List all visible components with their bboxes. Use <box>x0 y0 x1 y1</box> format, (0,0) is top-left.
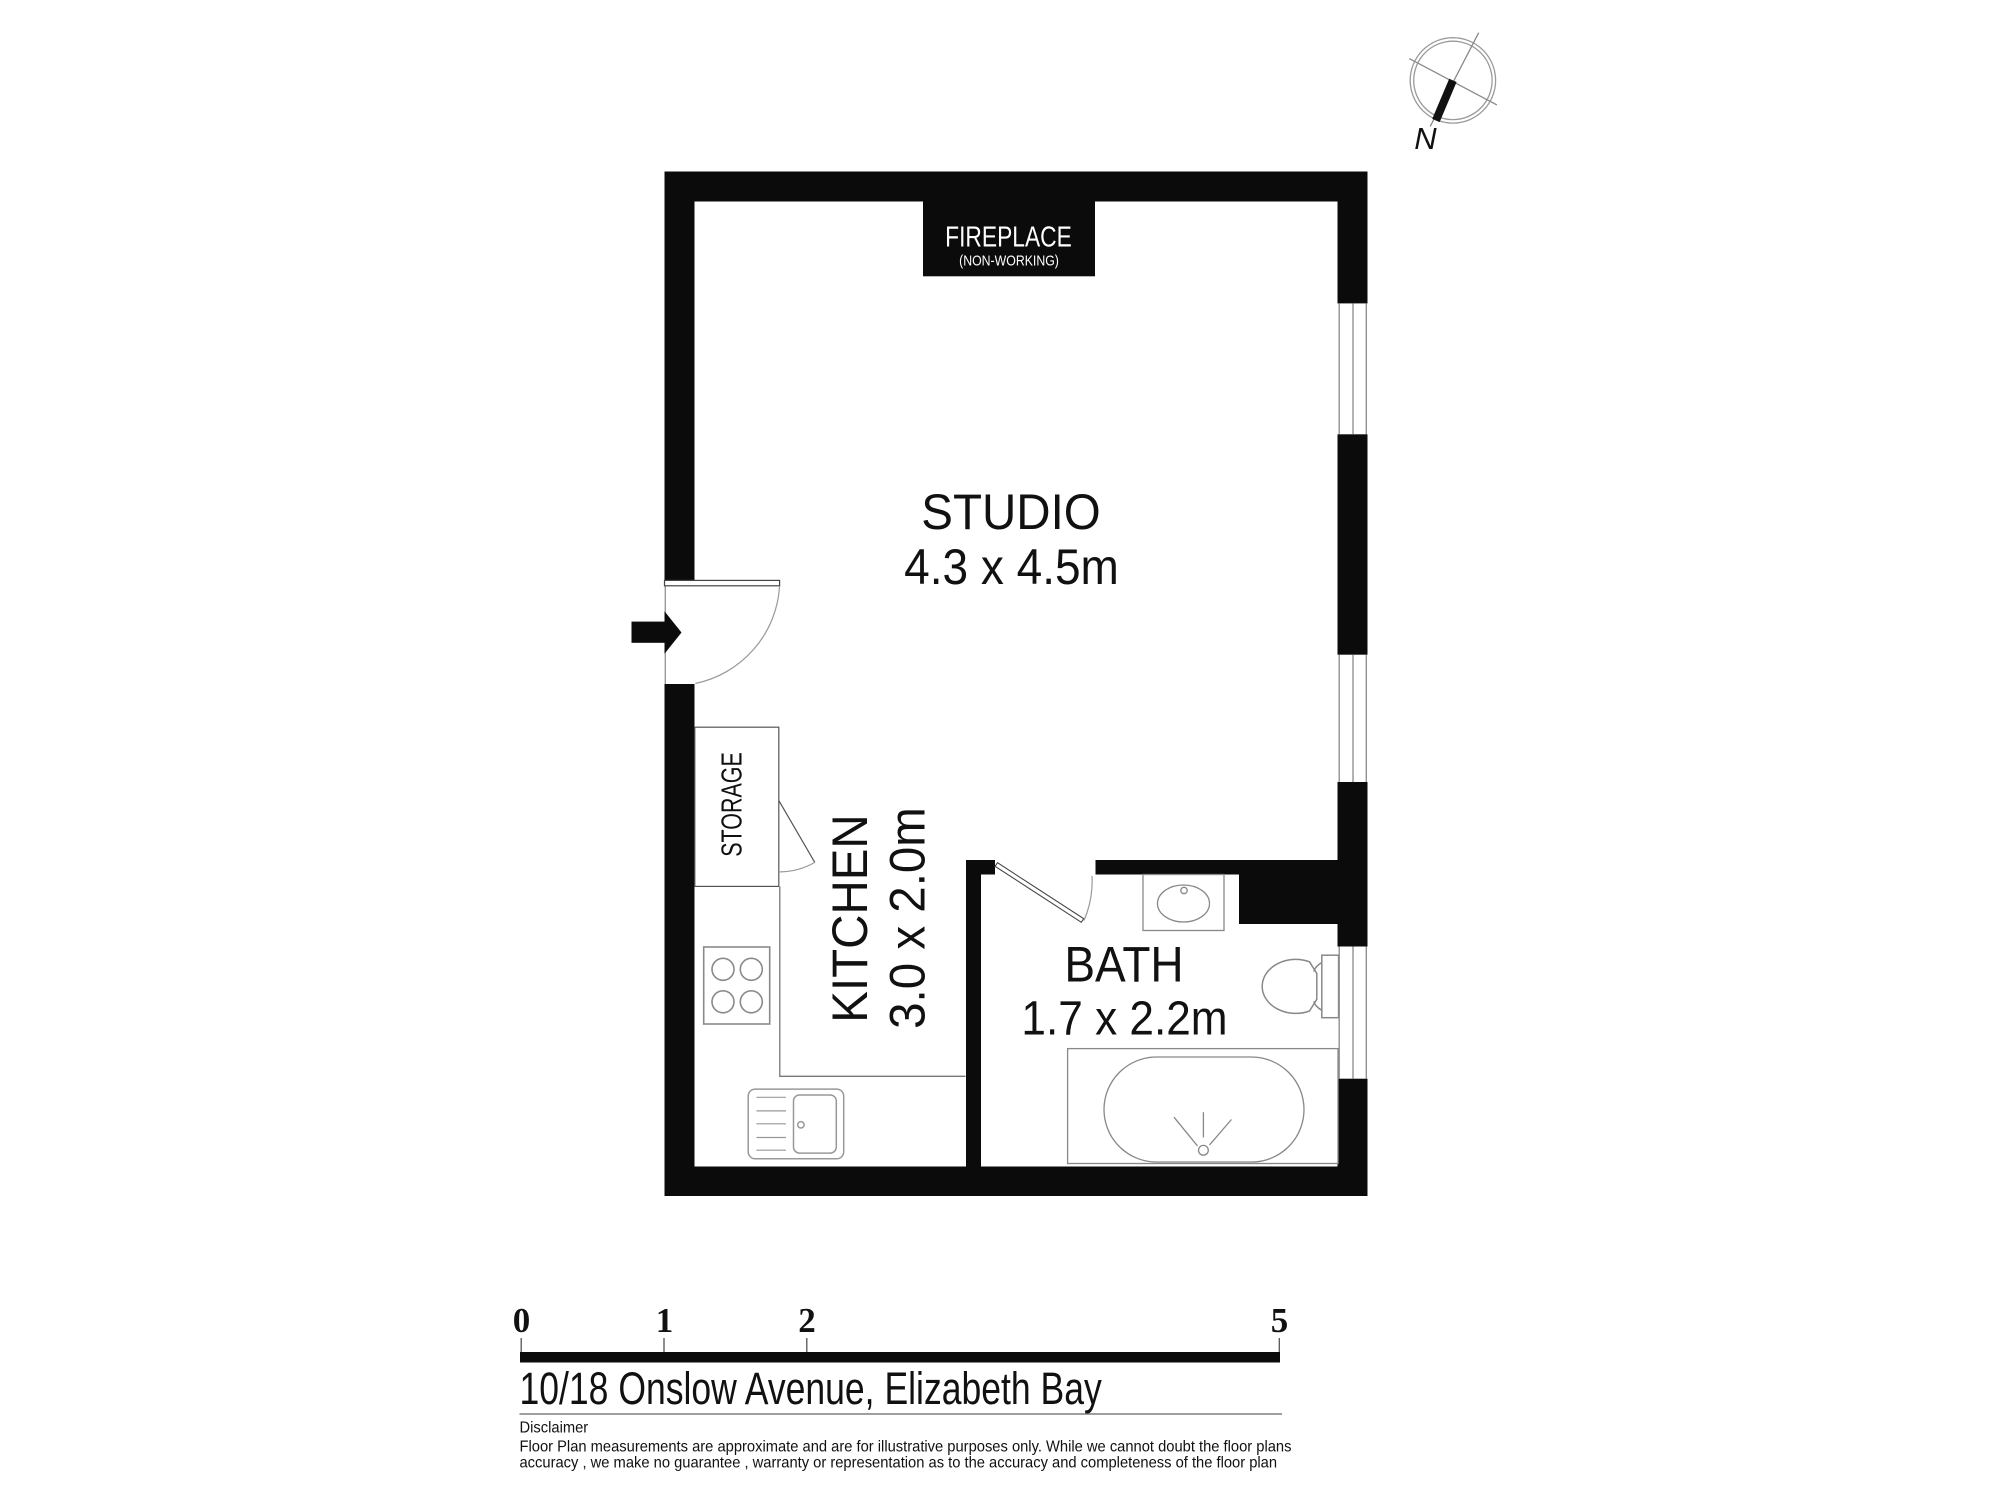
svg-text:N: N <box>1414 121 1437 156</box>
svg-text:1: 1 <box>656 1301 674 1340</box>
svg-text:FIREPLACE: FIREPLACE <box>945 222 1072 253</box>
svg-text:STUDIO: STUDIO <box>921 485 1100 540</box>
svg-text:10/18 Onslow Avenue, Elizabeth: 10/18 Onslow Avenue, Elizabeth Bay <box>520 1363 1103 1414</box>
svg-text:2: 2 <box>798 1301 816 1340</box>
svg-text:(NON-WORKING): (NON-WORKING) <box>959 253 1059 269</box>
svg-text:STORAGE: STORAGE <box>717 752 749 857</box>
svg-text:5: 5 <box>1271 1301 1289 1340</box>
svg-text:Disclaimer: Disclaimer <box>520 1419 589 1436</box>
svg-text:3.0 x 2.0m: 3.0 x 2.0m <box>880 807 935 1029</box>
svg-text:1.7 x 2.2m: 1.7 x 2.2m <box>1021 991 1227 1045</box>
svg-text:BATH: BATH <box>1064 938 1183 993</box>
svg-text:KITCHEN: KITCHEN <box>823 814 878 1022</box>
svg-text:4.3 x 4.5m: 4.3 x 4.5m <box>904 540 1119 595</box>
svg-text:accuracy , we make no guarante: accuracy , we make no guarantee , warran… <box>520 1454 1278 1471</box>
svg-text:Floor Plan measurements are ap: Floor Plan measurements are approximate … <box>520 1438 1292 1455</box>
svg-text:0: 0 <box>513 1301 531 1340</box>
